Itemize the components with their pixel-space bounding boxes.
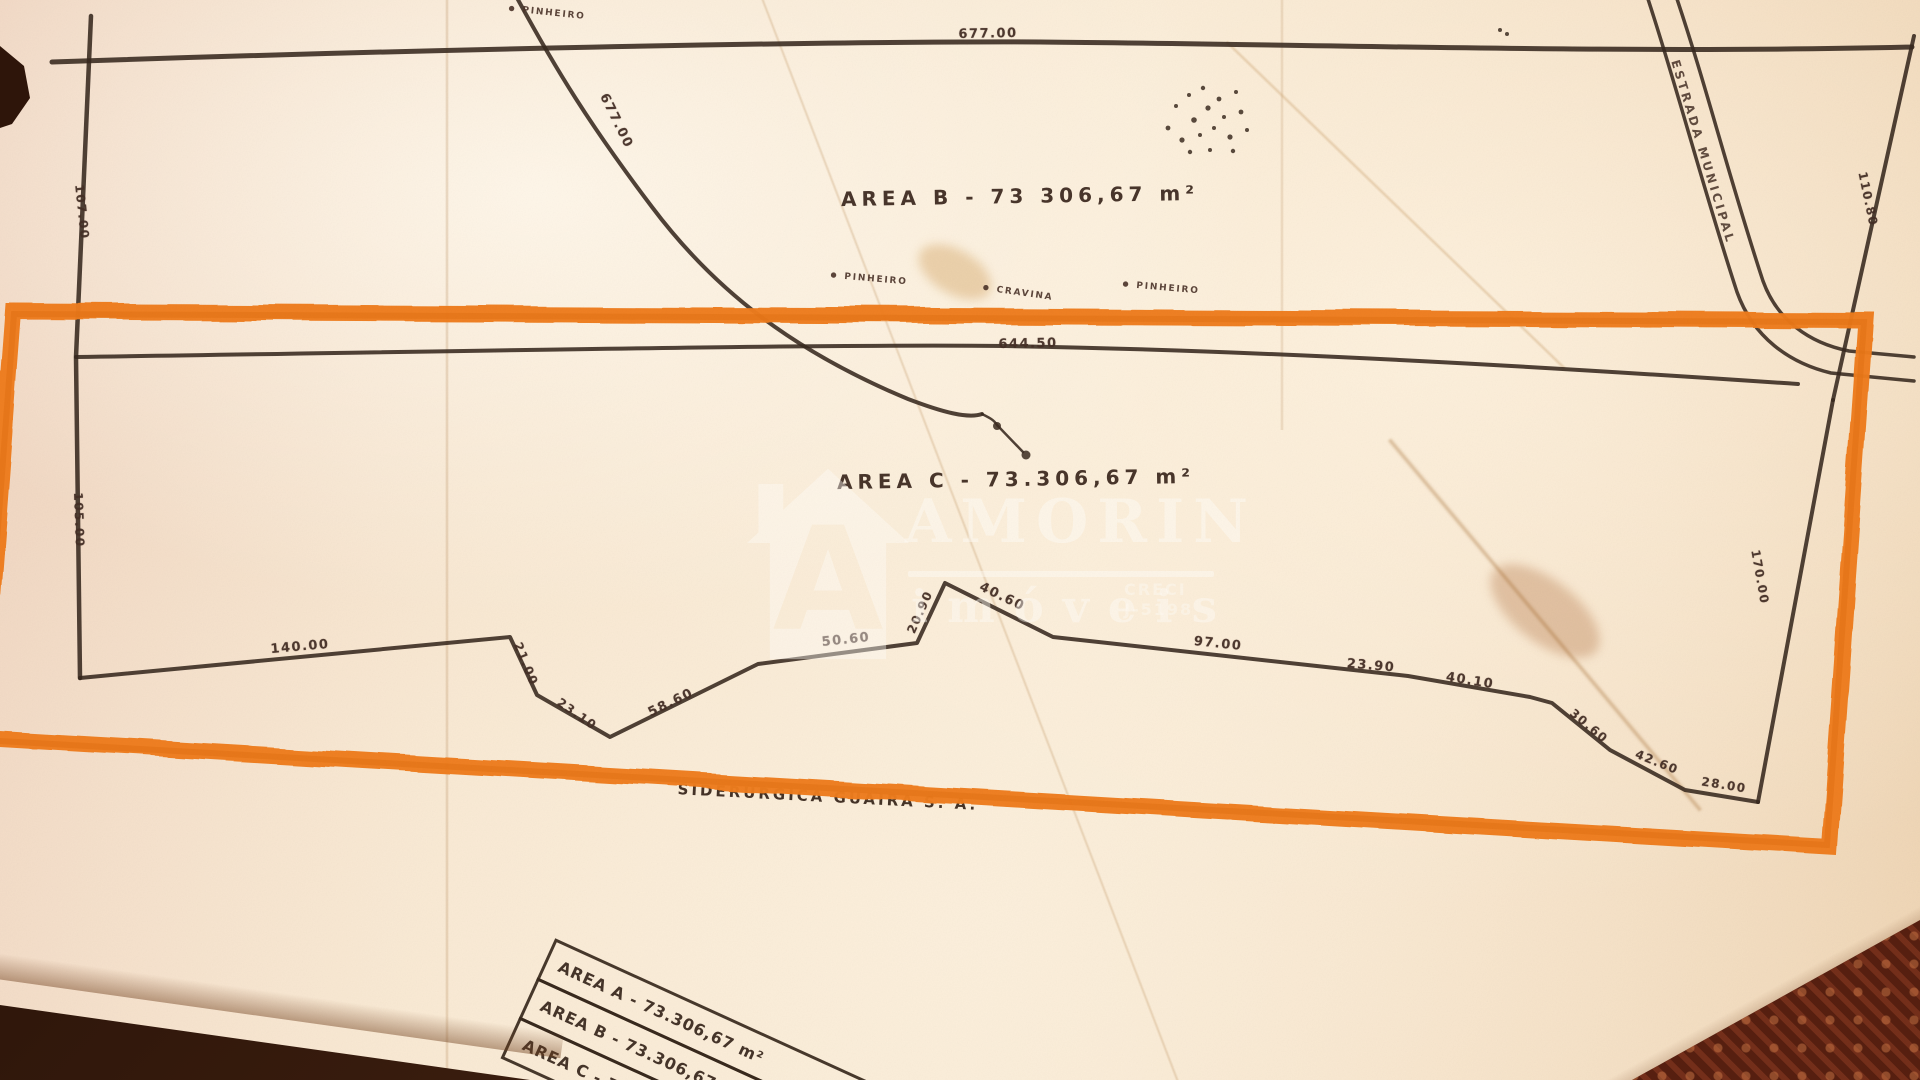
photo-grain (0, 0, 1920, 1080)
survey-map-photo: 677.00 677.00 107.00 105.00 644.50 110.8… (0, 0, 1920, 1080)
